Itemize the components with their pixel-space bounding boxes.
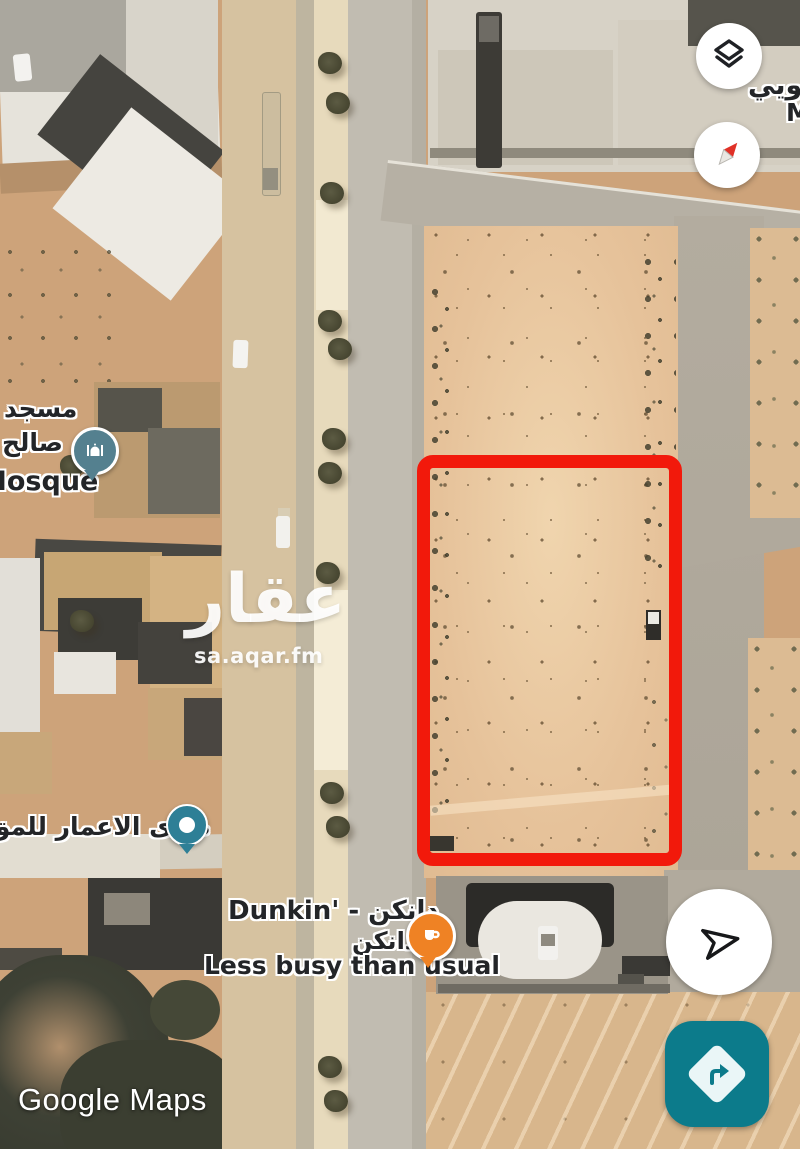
navigation-arrow-icon <box>689 914 749 970</box>
plot-boundary-overlay <box>417 455 682 866</box>
place-dot-icon <box>179 817 195 833</box>
my-location-button[interactable] <box>666 889 772 995</box>
layers-icon <box>711 36 747 76</box>
directions-button[interactable] <box>665 1021 769 1127</box>
far-right-lot-lower <box>748 638 800 888</box>
layers-button[interactable] <box>696 23 762 89</box>
compass-button[interactable] <box>694 122 760 188</box>
mosque-label-line2: صالح <box>2 428 63 457</box>
district-label-partial: M <box>786 98 800 127</box>
far-right-lot-upper <box>750 228 800 518</box>
contractor-marker[interactable] <box>166 804 208 846</box>
dunkin-marker-tip <box>420 957 436 968</box>
contractor-marker-tip <box>179 844 195 854</box>
aqar-site-url: sa.aqar.fm <box>194 646 323 667</box>
dunkin-busyness-status: Less busy than usual <box>204 951 500 980</box>
google-maps-attribution: Google Maps <box>18 1082 207 1118</box>
google-maps-satellite-view: عقار sa.aqar.fm لحويي M مسجد صالح Mosque… <box>0 0 800 1149</box>
mosque-label-line1: مسجد <box>4 394 77 423</box>
coffee-cup-icon <box>419 922 443 950</box>
mosque-marker-tip <box>84 470 100 481</box>
dunkin-marker[interactable] <box>406 911 456 961</box>
aqar-logo: عقار <box>186 566 346 634</box>
dunkin-label-title: Dunkin' - دانكن <box>228 896 439 926</box>
compass-icon <box>703 131 751 179</box>
turn-right-icon <box>686 1043 748 1105</box>
mosque-icon <box>84 438 106 464</box>
mosque-marker[interactable] <box>71 427 119 475</box>
